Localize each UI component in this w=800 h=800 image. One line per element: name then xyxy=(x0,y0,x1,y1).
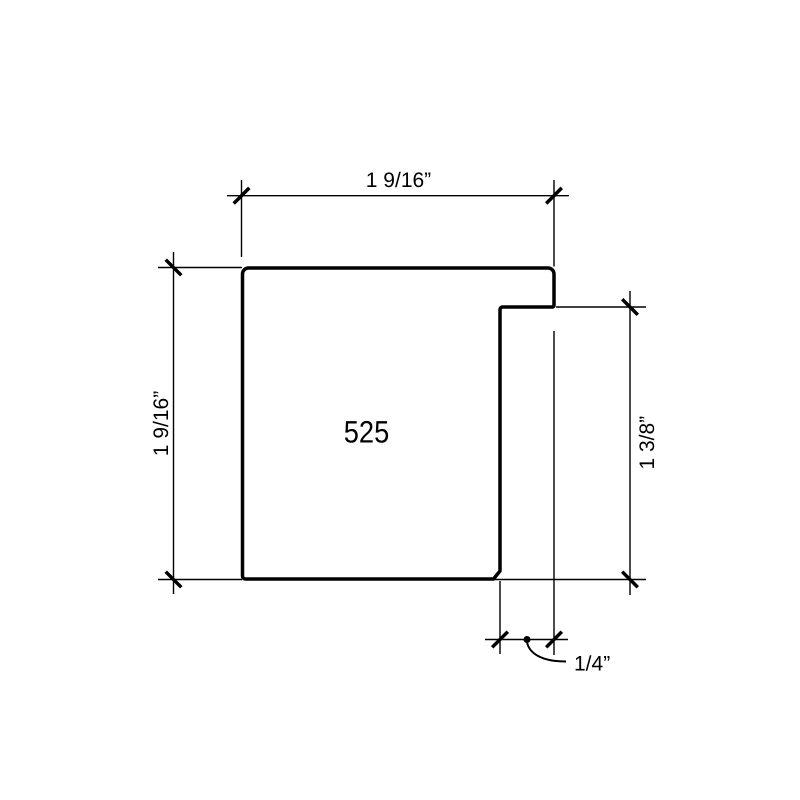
svg-text:1 9/16”: 1 9/16” xyxy=(150,391,173,456)
svg-text:1 9/16”: 1 9/16” xyxy=(366,169,431,192)
svg-text:525: 525 xyxy=(344,415,390,450)
svg-text:1/4”: 1/4” xyxy=(574,653,610,676)
svg-text:1 3/8”: 1 3/8” xyxy=(636,416,659,470)
